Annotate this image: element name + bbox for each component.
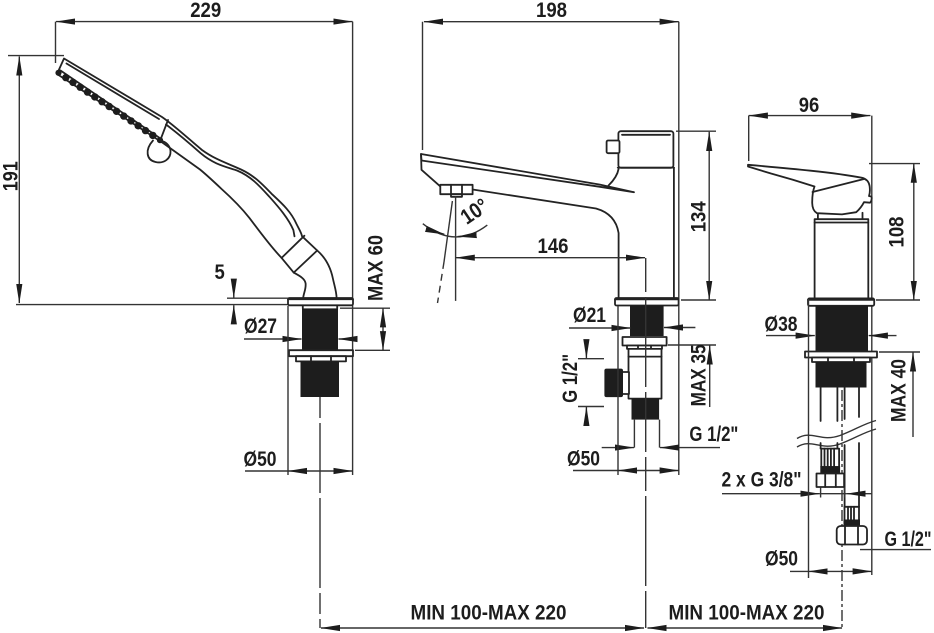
svg-text:146: 146: [538, 234, 569, 258]
svg-text:MIN 100-MAX 220: MIN 100-MAX 220: [669, 601, 825, 625]
svg-text:5: 5: [215, 260, 225, 284]
svg-text:MAX 60: MAX 60: [364, 235, 388, 301]
svg-text:229: 229: [190, 0, 221, 22]
svg-text:134: 134: [687, 201, 711, 232]
svg-text:108: 108: [885, 216, 909, 247]
svg-text:MAX 35: MAX 35: [687, 344, 711, 406]
svg-text:191: 191: [0, 161, 23, 191]
svg-text:Ø50: Ø50: [765, 547, 798, 571]
svg-text:G 1/2": G 1/2": [885, 527, 932, 551]
svg-text:2 x G 3/8": 2 x G 3/8": [722, 468, 802, 492]
svg-text:Ø21: Ø21: [573, 303, 606, 327]
svg-text:Ø38: Ø38: [765, 312, 798, 336]
svg-text:G 1/2": G 1/2": [689, 422, 738, 446]
svg-text:198: 198: [536, 0, 567, 22]
svg-text:G 1/2": G 1/2": [558, 354, 582, 403]
svg-text:Ø50: Ø50: [567, 447, 600, 471]
svg-text:Ø27: Ø27: [244, 314, 277, 338]
svg-text:MIN 100-MAX 220: MIN 100-MAX 220: [411, 601, 567, 625]
svg-text:96: 96: [799, 93, 820, 117]
svg-text:MAX 40: MAX 40: [886, 359, 910, 422]
svg-text:Ø50: Ø50: [244, 447, 277, 471]
